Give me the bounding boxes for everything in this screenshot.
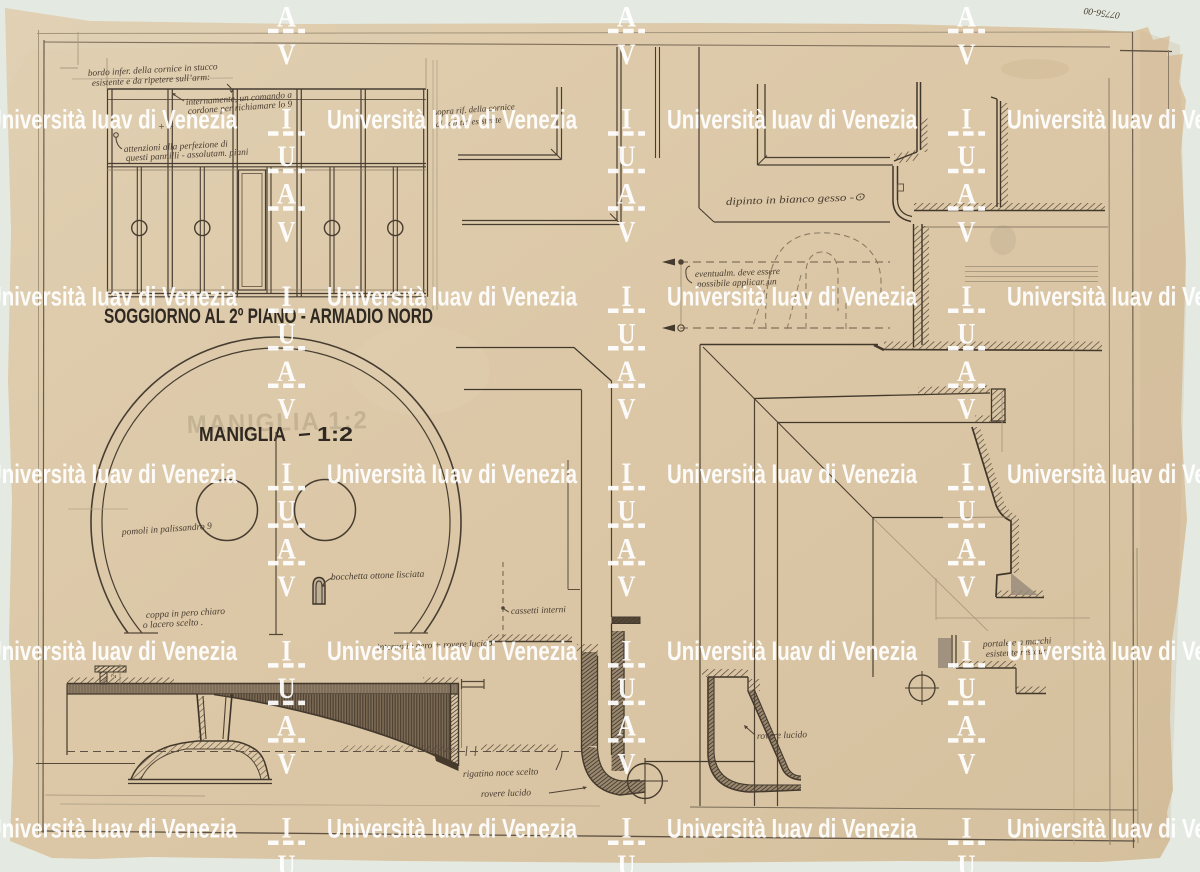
svg-text:MANIGLIA: MANIGLIA	[199, 424, 286, 446]
svg-text:rovere lucido: rovere lucido	[481, 788, 532, 800]
svg-text:A: A	[957, 0, 976, 33]
svg-text:A: A	[617, 0, 636, 33]
svg-text:rovere lucido: rovere lucido	[757, 730, 808, 742]
svg-text:V: V	[278, 38, 296, 71]
svg-text:2·: 2·	[109, 672, 118, 678]
svg-text:1:2: 1:2	[317, 424, 353, 446]
svg-text:cassetti interni: cassetti interni	[511, 605, 567, 617]
svg-text:V: V	[618, 38, 636, 71]
svg-text:A: A	[277, 0, 296, 33]
svg-text:V: V	[958, 38, 976, 71]
